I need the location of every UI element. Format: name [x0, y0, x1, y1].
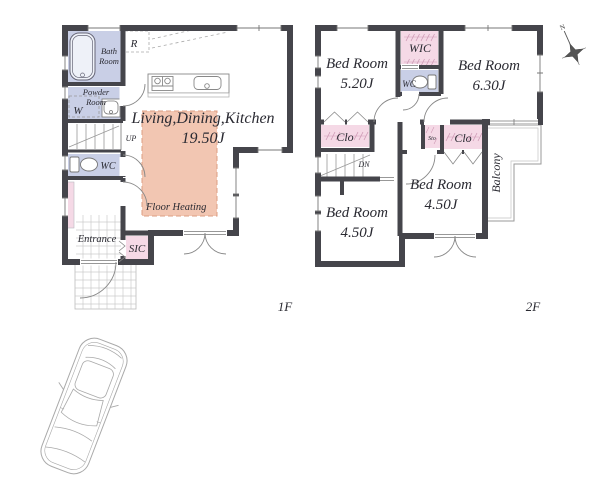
ldk-size-label: 19.50J [181, 130, 225, 147]
stairs-down-label: DN [357, 160, 370, 169]
balcony-label: Balcony [489, 153, 503, 193]
bedroom1-name-label: Bed Room [326, 56, 388, 72]
closet-left-label: Clo [336, 130, 353, 144]
bedroom4-name-label: Bed Room [326, 205, 388, 221]
wc-2f-label: WC [402, 79, 416, 89]
floorplan-canvas: Living,Dining,Kitchen 19.50J Floor Heati… [0, 0, 600, 492]
floorplan-2f: Bed Room 5.20J Bed Room 6.30J Bed Room 4… [315, 25, 543, 314]
bathtub-icon [70, 33, 95, 80]
floorplan-page: Living,Dining,Kitchen 19.50J Floor Heati… [0, 0, 600, 492]
powder-label-1: Powder [82, 87, 110, 97]
bedroom3-size-label: 4.50J [425, 197, 459, 213]
stairs-up-label: UP [126, 134, 137, 143]
compass-icon: N [549, 18, 591, 70]
stairs-1f [69, 123, 121, 150]
bedroom4-size-label: 4.50J [341, 225, 375, 241]
car-illustration [30, 331, 138, 481]
compass-north-label: N [559, 23, 567, 32]
entrance-label: Entrance [77, 234, 117, 245]
powder-label-2: Room [85, 97, 106, 107]
bedroom2-name-label: Bed Room [458, 58, 520, 74]
ldk-name-label: Living,Dining,Kitchen [130, 110, 274, 127]
floor-heating-label: Floor Heating [145, 202, 206, 213]
bathroom-label-2: Room [98, 56, 119, 66]
bedroom1-size-label: 5.20J [341, 76, 375, 92]
kitchen-island [148, 74, 229, 97]
fridge-label: R [130, 38, 138, 50]
bathroom-label-1: Bath [101, 46, 117, 56]
stove-icon [152, 77, 173, 91]
floor1-label: 1F [278, 299, 294, 314]
wic-label: WIC [409, 41, 432, 55]
closet-right-label: Clo [454, 131, 471, 145]
wc-1f-label: WC [101, 161, 116, 172]
toilet-1f-icon [70, 157, 98, 172]
washer-label: W [73, 105, 83, 117]
toilet-2f-icon [413, 75, 437, 89]
floorplan-1f: Living,Dining,Kitchen 19.50J Floor Heati… [62, 25, 293, 314]
storage-label: Sto [428, 136, 436, 142]
floor2-label: 2F [526, 299, 542, 314]
entrance-steps [75, 264, 136, 309]
bedroom3-name-label: Bed Room [410, 177, 472, 193]
sink-icon [194, 77, 221, 90]
bedroom2-size-label: 6.30J [473, 78, 507, 94]
sic-label: SIC [129, 243, 146, 255]
